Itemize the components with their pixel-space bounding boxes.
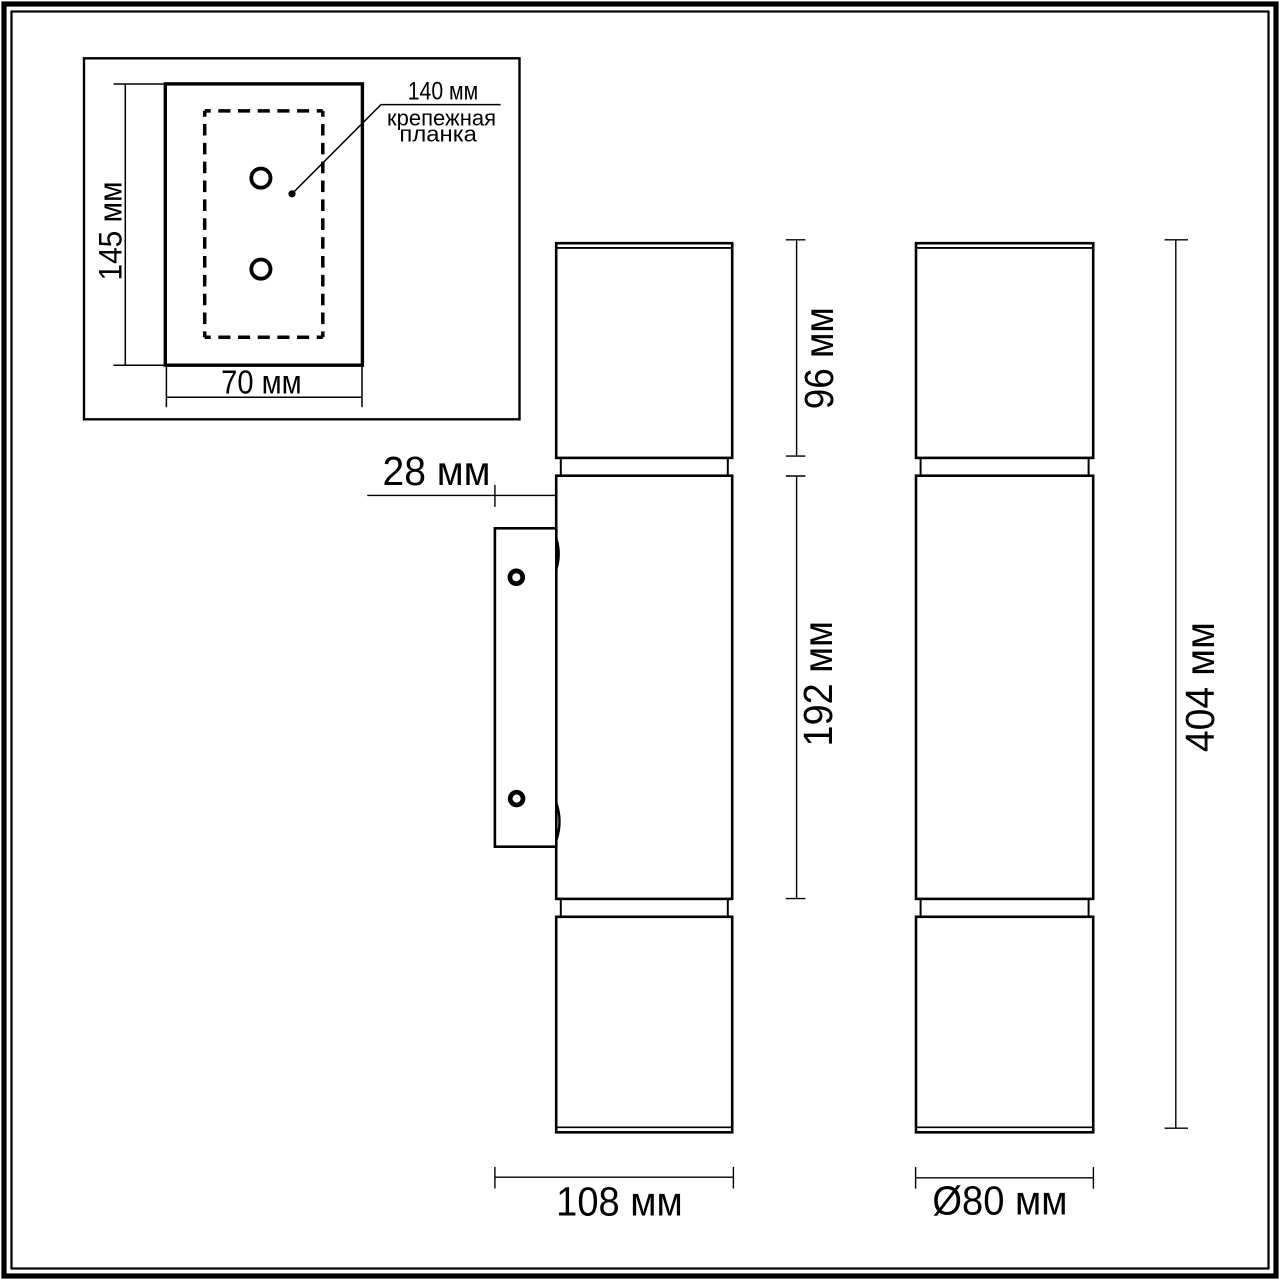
svg-text:Ø80 мм: Ø80 мм [932, 1177, 1067, 1223]
svg-text:планка: планка [399, 122, 477, 147]
svg-text:192 мм: 192 мм [795, 621, 841, 747]
svg-text:140 мм: 140 мм [408, 78, 479, 106]
svg-text:145 мм: 145 мм [92, 182, 128, 281]
svg-text:96 мм: 96 мм [796, 307, 842, 409]
svg-text:108 мм: 108 мм [556, 1179, 683, 1225]
svg-text:404 мм: 404 мм [1177, 622, 1223, 752]
svg-text:28 мм: 28 мм [383, 448, 491, 494]
svg-text:70 мм: 70 мм [221, 364, 302, 401]
